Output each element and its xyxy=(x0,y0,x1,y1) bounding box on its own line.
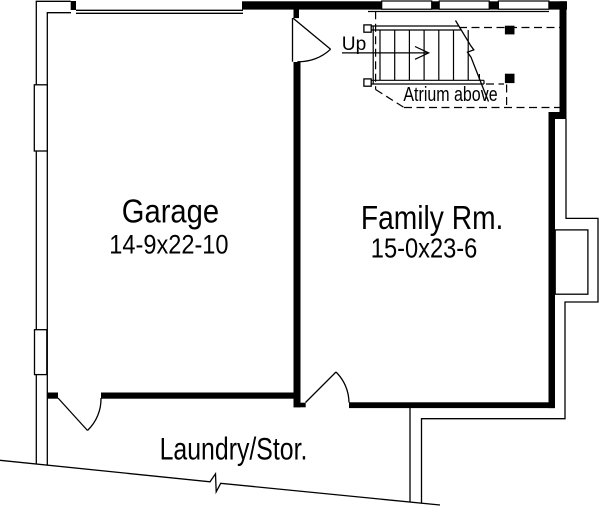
svg-text:Laundry/Stor.: Laundry/Stor. xyxy=(160,430,308,466)
svg-text:15-0x23-6: 15-0x23-6 xyxy=(371,232,478,263)
svg-text:Up: Up xyxy=(342,33,367,55)
svg-text:Atrium above: Atrium above xyxy=(403,84,497,106)
svg-text:Garage: Garage xyxy=(122,193,219,230)
svg-text:14-9x22-10: 14-9x22-10 xyxy=(109,229,228,260)
svg-text:Family Rm.: Family Rm. xyxy=(361,199,504,236)
